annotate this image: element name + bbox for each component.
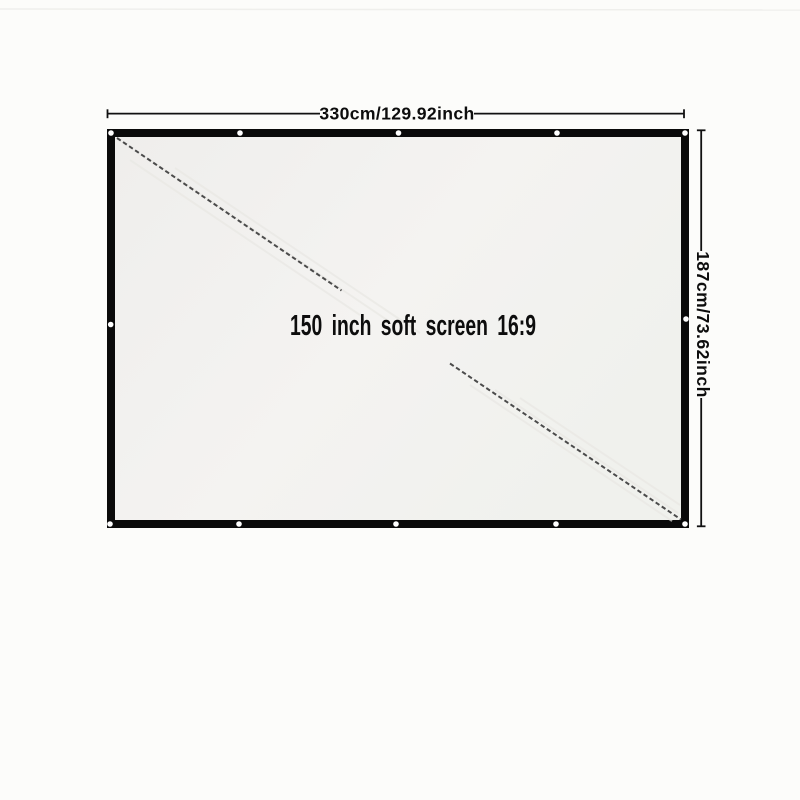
svg-text:330cm/129.92inch: 330cm/129.92inch [319, 104, 474, 124]
svg-text:150 inch soft screen 16:9: 150 inch soft screen 16:9 [290, 310, 536, 342]
svg-text:187cm/73.62inch: 187cm/73.62inch [693, 251, 713, 398]
